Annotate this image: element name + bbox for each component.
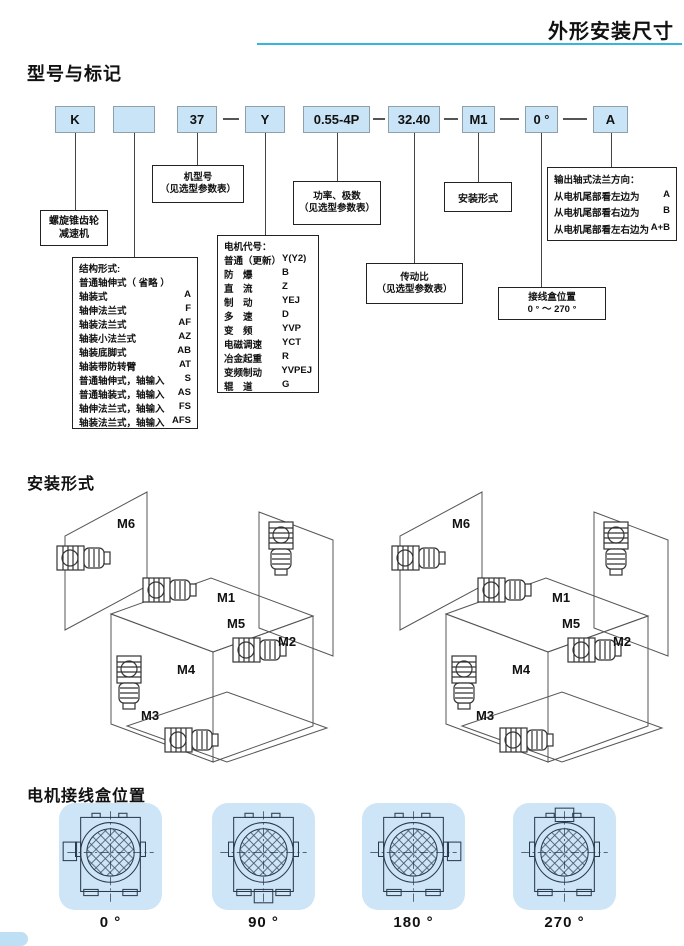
dash [373, 118, 385, 120]
gearmotor-m4 [452, 656, 476, 709]
motor-code-row: 防 爆B [224, 267, 312, 281]
gearmotor-m6 [392, 546, 445, 570]
code-box-blank [113, 106, 155, 133]
junction-tile-0 [59, 803, 162, 910]
junction-tile-270 [513, 803, 616, 910]
mounting-diagram-left: M6 M1 M2 M5 M4 M3 [35, 486, 345, 786]
label-ratio: 传动比 （见选型参数表） [366, 263, 463, 304]
mounting-label-text: 安装形式 [445, 190, 511, 205]
dash [223, 118, 239, 120]
structure-row: 轴装小法兰式AZ [79, 331, 191, 345]
gearmotor-m2 [604, 522, 628, 575]
connector-mount [478, 133, 479, 182]
motor-code-row: 直 流Z [224, 281, 312, 295]
junction-line1: 接线盒位置 [499, 292, 605, 304]
cube-right-face [548, 616, 648, 762]
code-box-mount: M1 [462, 106, 495, 133]
structure-title: 结构形式: [79, 261, 120, 275]
mount-label-m4: M4 [512, 662, 531, 677]
structure-row: 普通轴伸式（ 省略 ） [79, 275, 191, 289]
connector-ratio [414, 133, 415, 263]
motor-code-row: 多 速D [224, 309, 312, 323]
label-structure-forms: 结构形式: 普通轴伸式（ 省略 ） 轴装式A 轴伸法兰式F 轴装法兰式AF 轴装… [72, 257, 198, 429]
gearmotor-m3 [500, 728, 553, 752]
flange-row: 从电机尾部看右边为B [554, 205, 670, 219]
reducer-line1: 螺旋锥齿轮 [41, 215, 107, 228]
model-number-line1: 机型号 [153, 172, 243, 184]
power-line1: 功率、极数 [294, 191, 380, 203]
code-box-power: 0.55-4P [303, 106, 370, 133]
flange-row: 从电机尾部看左边为A [554, 189, 670, 203]
dash [500, 118, 519, 120]
label-motor-codes: 电机代号： 普通（更新）Y(Y2) 防 爆B 直 流Z 制 动YEJ 多 速D … [217, 235, 319, 393]
mount-label-m4: M4 [177, 662, 196, 677]
dash [444, 118, 458, 120]
label-power-poles: 功率、极数 （见选型参数表） [293, 181, 381, 225]
dash [563, 118, 587, 120]
motor-code-row: 辊 道G [224, 379, 312, 393]
mount-label-m2: M2 [613, 634, 631, 649]
motor-code-row: 制 动YEJ [224, 295, 312, 309]
mount-label-m5: M5 [227, 616, 245, 631]
code-box-motor: Y [245, 106, 285, 133]
cube-right-face [213, 616, 313, 762]
junction-angle-label-90: 90 ° [212, 914, 315, 931]
panel-m3 [462, 692, 662, 762]
connector-size [197, 133, 198, 165]
gearmotor-m3 [165, 728, 218, 752]
structure-row: 轴伸法兰式F [79, 303, 191, 317]
label-flange-direction: 输出轴式法兰方向： 从电机尾部看左边为A 从电机尾部看右边为B 从电机尾部看左右… [547, 167, 677, 241]
mount-label-m6: M6 [117, 516, 135, 531]
gearmotor-m1 [143, 578, 196, 602]
flange-title: 输出轴式法兰方向： [554, 172, 640, 186]
structure-row: 轴装底脚式AB [79, 345, 191, 359]
motor-front-view-0 [59, 803, 162, 910]
flange-row: 从电机尾部看左右边为A+B [554, 222, 670, 236]
panel-m3 [127, 692, 327, 762]
motor-front-view-180 [362, 803, 465, 910]
motor-code-row: 电磁调速YCT [224, 337, 312, 351]
motor-front-view-270 [513, 803, 616, 910]
mount-label-m6: M6 [452, 516, 470, 531]
ratio-line1: 传动比 [367, 272, 462, 284]
ratio-line2: （见选型参数表） [367, 284, 462, 296]
terminal-box [447, 842, 460, 861]
mount-label-m2: M2 [278, 634, 296, 649]
gearmotor-m6 [57, 546, 110, 570]
mount-label-m1: M1 [552, 590, 570, 605]
label-mounting-form: 安装形式 [444, 182, 512, 212]
connector-flange [611, 133, 612, 167]
structure-row: 轴伸法兰式，轴输入FS [79, 401, 191, 415]
power-line2: （见选型参数表） [294, 203, 380, 215]
connector-angle [541, 133, 542, 287]
flange-title-row: 输出轴式法兰方向： [554, 172, 670, 186]
mounting-diagram-right: M6 M1 M2 M5 M4 M3 [370, 486, 680, 786]
motor-code-row: 冶金起重R [224, 351, 312, 365]
code-box-size: 37 [177, 106, 217, 133]
label-model-number: 机型号 （见选型参数表） [152, 165, 244, 203]
mount-label-m3: M3 [476, 708, 494, 723]
page-title: 外形安装尺寸 [548, 15, 674, 44]
junction-angle-label-270: 270 ° [513, 914, 616, 931]
connector-k [75, 133, 76, 210]
structure-row: 轴装法兰式AF [79, 317, 191, 331]
connector-blank [134, 133, 135, 257]
structure-title-row: 结构形式: [79, 261, 191, 275]
junction-angle-label-180: 180 ° [362, 914, 465, 931]
connector-power [337, 133, 338, 181]
gearmotor-m2 [269, 522, 293, 575]
label-junction-position: 接线盒位置 0 ° ～ 270 ° [498, 287, 606, 320]
connector-motor [265, 133, 266, 235]
code-box-flange: A [593, 106, 628, 133]
mount-label-m1: M1 [217, 590, 235, 605]
catalog-page: 外形安装尺寸 型号与标记 K 37 Y 0.55-4P 32.40 M1 0 °… [0, 0, 684, 946]
label-reducer-type: 螺旋锥齿轮 减速机 [40, 210, 108, 246]
structure-row: 轴装法兰式，轴输入AFS [79, 415, 191, 429]
motor-front-view-90 [212, 803, 315, 910]
junction-line2: 0 ° ～ 270 ° [499, 304, 605, 316]
reducer-line2: 减速机 [41, 228, 107, 241]
junction-tile-90 [212, 803, 315, 910]
code-box-k: K [55, 106, 95, 133]
mount-label-m5: M5 [562, 616, 580, 631]
motor-code-row: 普通（更新）Y(Y2) [224, 253, 312, 267]
structure-row: 轴装带防转臂AT [79, 359, 191, 373]
code-box-ratio: 32.40 [388, 106, 440, 133]
gearmotor-m4 [117, 656, 141, 709]
junction-tile-180 [362, 803, 465, 910]
code-box-angle: 0 ° [525, 106, 558, 133]
motor-code-row: 变 频YVP [224, 323, 312, 337]
page-corner-mark [0, 932, 28, 946]
motor-code-row: 变频制动YVPEJ [224, 365, 312, 379]
terminal-box [63, 842, 76, 861]
gearmotor-m1 [478, 578, 531, 602]
motor-codes-title-row: 电机代号： [224, 239, 312, 253]
structure-row: 普通轴伸式，轴输入S [79, 373, 191, 387]
section-title-model: 型号与标记 [27, 60, 122, 86]
structure-row: 普通轴装式，轴输入AS [79, 387, 191, 401]
junction-angle-label-0: 0 ° [59, 914, 162, 931]
model-number-line2: （见选型参数表） [153, 184, 243, 196]
structure-row: 轴装式A [79, 289, 191, 303]
header-accent-rule [257, 43, 682, 45]
mount-label-m3: M3 [141, 708, 159, 723]
motor-codes-title: 电机代号： [224, 239, 272, 253]
